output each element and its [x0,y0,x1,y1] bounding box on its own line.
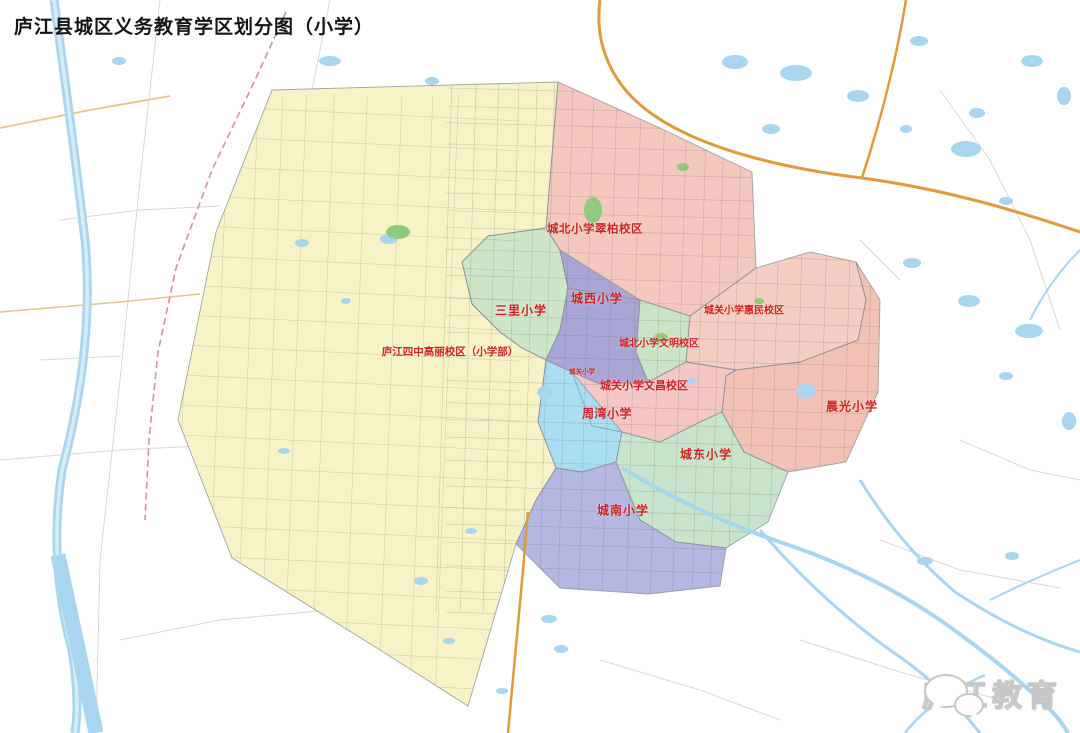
map-canvas [0,0,1080,733]
zone-sizhong [178,82,558,706]
page-title: 庐江县城区义务教育学区划分图（小学） [14,12,374,39]
minor-highways-layer [0,96,200,312]
school-district-map: 庐江四中高丽校区（小学部）城北小学翠柏校区三里小学城西小学城北小学文明校区城关小… [0,0,1080,733]
watermark: 庐江教育 [922,671,1062,715]
wechat-icon [922,671,984,721]
zones-layer [178,82,880,706]
